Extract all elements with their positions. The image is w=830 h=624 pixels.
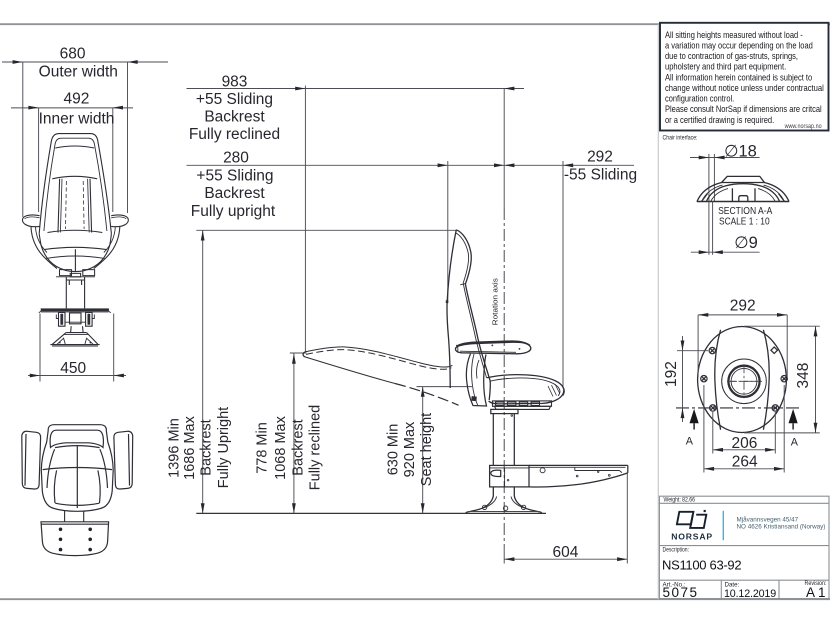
svg-text:NORSAP: NORSAP xyxy=(671,532,713,542)
svg-text:due to contraction of gas-stru: due to contraction of gas-struts, spring… xyxy=(665,50,798,61)
svg-text:change without notice unless u: change without notice unless under contr… xyxy=(665,82,824,93)
svg-text:Description:: Description: xyxy=(663,547,690,554)
svg-text:Backrest: Backrest xyxy=(199,419,215,475)
svg-text:630 Min: 630 Min xyxy=(386,424,402,476)
svg-text:A: A xyxy=(791,436,799,448)
svg-text:A: A xyxy=(686,435,694,447)
svg-text:or a certified drawing is requ: or a certified drawing is required. xyxy=(665,114,774,125)
svg-text:264: 264 xyxy=(732,453,758,470)
svg-text:Rotation axis: Rotation axis xyxy=(491,278,500,325)
svg-text:All sitting heights measured w: All sitting heights measured without loa… xyxy=(665,29,803,40)
svg-text:+55 Sliding: +55 Sliding xyxy=(196,168,273,185)
svg-text:1686 Max: 1686 Max xyxy=(182,415,198,479)
svg-text:+55 Sliding: +55 Sliding xyxy=(196,91,273,108)
svg-text:1068 Max: 1068 Max xyxy=(273,415,289,479)
svg-text:604: 604 xyxy=(552,544,578,561)
svg-text:SECTION A-A: SECTION A-A xyxy=(718,206,772,217)
svg-text:192: 192 xyxy=(663,361,680,387)
svg-text:Fully Upright: Fully Upright xyxy=(216,407,232,488)
svg-text:All information herein contain: All information herein contained is subj… xyxy=(665,71,812,82)
svg-text:Weight: 82.66: Weight: 82.66 xyxy=(664,497,696,504)
svg-text:450: 450 xyxy=(60,360,86,377)
svg-text:206: 206 xyxy=(731,435,757,452)
svg-text:www.norsap.no: www.norsap.no xyxy=(784,123,822,130)
svg-text:5075: 5075 xyxy=(663,585,699,600)
svg-text:∅18: ∅18 xyxy=(724,142,757,160)
svg-text:NO 4626 Kristiansand (Norway): NO 4626 Kristiansand (Norway) xyxy=(737,523,826,530)
svg-text:-55 Sliding: -55 Sliding xyxy=(564,167,637,184)
svg-text:348: 348 xyxy=(795,363,812,389)
svg-text:Fully reclined: Fully reclined xyxy=(308,405,324,490)
svg-text:280: 280 xyxy=(223,150,249,167)
svg-text:10.12.2019: 10.12.2019 xyxy=(724,588,776,600)
svg-text:Backrest: Backrest xyxy=(204,109,265,126)
svg-text:Outer width: Outer width xyxy=(39,64,118,81)
svg-text:Inner width: Inner width xyxy=(39,111,115,128)
svg-text:configuration control.: configuration control. xyxy=(665,93,734,104)
svg-text:1396 Min: 1396 Min xyxy=(167,418,183,478)
svg-text:upholstery and third part equi: upholstery and third part equipment. xyxy=(665,61,786,72)
svg-text:∅9: ∅9 xyxy=(734,234,758,252)
svg-text:a variation may occur dependin: a variation may occur depending on the l… xyxy=(665,39,813,50)
svg-text:778 Min: 778 Min xyxy=(255,422,271,474)
svg-text:680: 680 xyxy=(60,45,86,62)
svg-text:A 1: A 1 xyxy=(806,585,826,600)
svg-text:Chair interface:: Chair interface: xyxy=(663,135,698,142)
svg-text:SCALE 1 : 10: SCALE 1 : 10 xyxy=(719,217,770,228)
svg-text:983: 983 xyxy=(222,73,248,90)
svg-text:292: 292 xyxy=(730,297,756,314)
svg-text:292: 292 xyxy=(587,149,613,166)
svg-text:492: 492 xyxy=(63,91,89,108)
svg-text:Please consult NorSap if dimen: Please consult NorSap if dimensions are … xyxy=(665,103,822,114)
svg-text:Mjåvannsvegen 45/47: Mjåvannsvegen 45/47 xyxy=(737,515,799,523)
svg-text:Fully upright: Fully upright xyxy=(191,203,276,220)
svg-text:Backrest: Backrest xyxy=(204,185,265,202)
svg-text:NS1100 63-92: NS1100 63-92 xyxy=(662,558,741,573)
svg-text:Seat height: Seat height xyxy=(419,413,435,486)
svg-text:Backrest: Backrest xyxy=(291,419,307,475)
svg-text:Fully reclined: Fully reclined xyxy=(189,126,280,143)
svg-text:920 Max: 920 Max xyxy=(402,421,418,477)
